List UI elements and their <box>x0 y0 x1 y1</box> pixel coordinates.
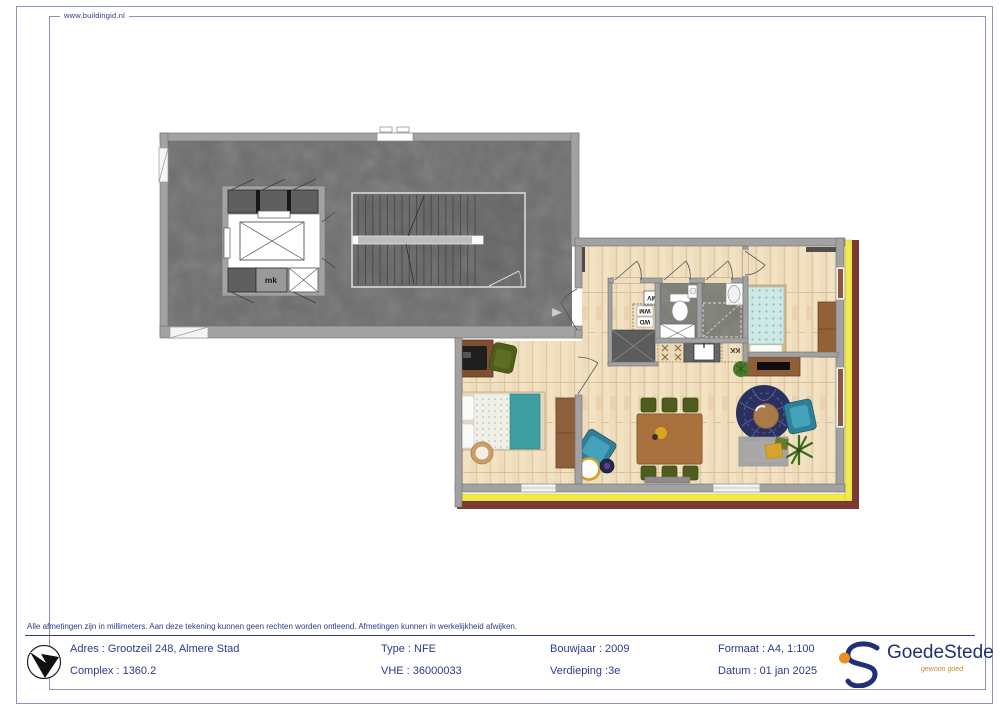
field-complex: Complex : 1360.2 <box>70 665 156 677</box>
floor-plan: mk <box>0 0 1000 707</box>
drawing-page: www.buildingid.nl <box>0 0 1000 707</box>
gray-rug <box>739 437 789 466</box>
ottoman <box>600 459 614 473</box>
armchair-right <box>783 398 817 434</box>
titleblock-separator <box>25 635 975 636</box>
corridor-block: mk <box>167 140 572 327</box>
bed2-throw <box>510 394 540 449</box>
field-adres: Adres : Grootzeil 248, Almere Stad <box>70 643 239 655</box>
dryer-label: WD <box>639 318 650 325</box>
fridge-label: KK <box>730 346 740 353</box>
windowsill-bench <box>645 477 690 483</box>
field-verdieping: Verdieping :3e <box>550 665 620 677</box>
disclaimer-text: Alle afmetingen zijn in millimeters. Aan… <box>27 622 517 631</box>
dining-table <box>637 414 702 464</box>
facade-bottom <box>457 501 859 509</box>
tv <box>757 362 790 370</box>
field-type: Type : NFE <box>381 643 436 655</box>
north-arrow-icon <box>26 642 64 684</box>
field-bouwjaar: Bouwjaar : 2009 <box>550 643 630 655</box>
elevator-block: mk <box>222 179 335 303</box>
field-vhe: VHE : 36000033 <box>381 665 462 677</box>
washer-label: WM <box>639 307 651 314</box>
wardrobe1 <box>818 302 838 357</box>
facade-right <box>852 240 859 509</box>
balcony-yellow-bottom <box>457 494 852 501</box>
storage-closet <box>612 330 655 362</box>
gs-monogram-icon <box>835 636 885 688</box>
field-datum: Datum : 01 jan 2025 <box>718 665 817 677</box>
dining-chair <box>683 398 698 412</box>
logo-name: GoedeStede <box>887 642 994 664</box>
field-formaat: Formaat : A4, 1:100 <box>718 643 815 655</box>
company-logo: GoedeStede gewoon goed <box>835 636 985 688</box>
dining-chair <box>662 398 677 412</box>
logo-tagline: gewoon goed <box>921 666 963 673</box>
bathroom-sink <box>726 283 743 305</box>
bed1-duvet <box>748 287 784 344</box>
meter-cupboard-label: mk <box>265 275 278 285</box>
dining-chair <box>641 398 656 412</box>
dining-set <box>637 398 702 480</box>
bed2-duvet <box>474 394 512 449</box>
toilet-sink <box>688 285 698 298</box>
cushion-yellow <box>765 443 783 459</box>
balcony-yellow-right <box>845 240 852 501</box>
coffee-table <box>754 404 779 429</box>
stairwell <box>352 193 525 287</box>
